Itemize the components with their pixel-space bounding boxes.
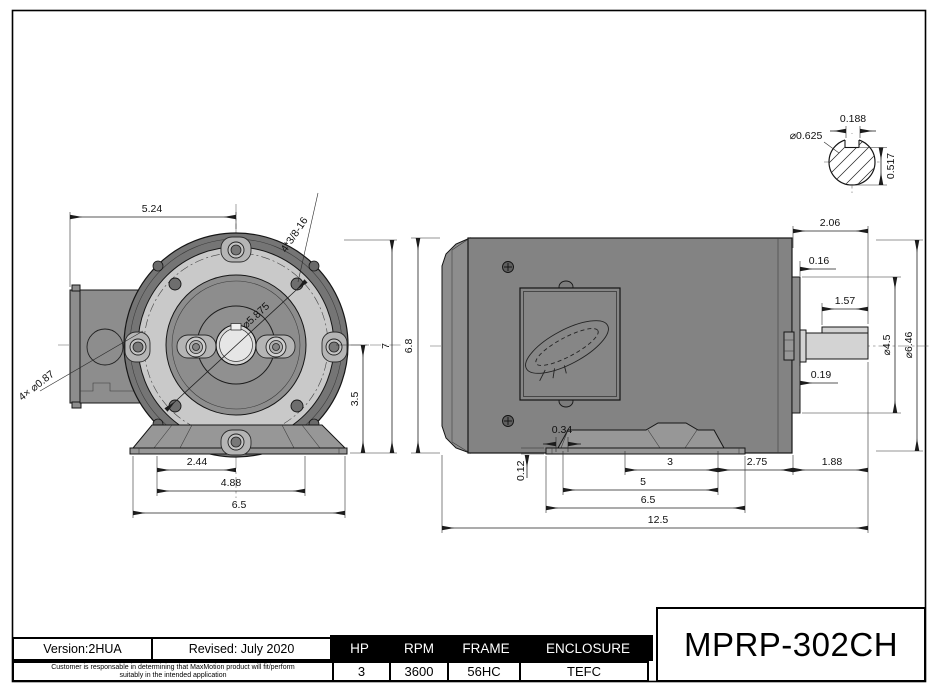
nameplate	[518, 281, 620, 407]
dim-tap-holes: 4*3/8-16	[279, 215, 311, 255]
dim-foot-bolt-length-span: 5	[640, 476, 646, 488]
dim-key-width: 0.188	[840, 113, 866, 125]
dim-face-overhang: 2.75	[747, 456, 768, 468]
dim-pilot-diameter: ⌀4.5	[881, 334, 893, 355]
flange-ear-bottom	[221, 430, 251, 455]
dim-shaft-length: 1.88	[822, 456, 843, 468]
dim-foot-bolt-span: 4.88	[221, 477, 242, 489]
dim-overall-length: 12.5	[648, 514, 669, 526]
motor-body	[468, 238, 792, 453]
drawing-sheet: 5.24 4*3/8-16 ⌀5.875 4× ⌀0.87 7 3.5 2.44…	[0, 0, 938, 692]
dim-shaft-center-height: 3.5	[349, 392, 361, 407]
dim-conduit-knockouts: 4× ⌀0.87	[16, 368, 56, 403]
disclaimer-line-1: Customer is responsable in determining t…	[51, 664, 295, 672]
version-cell: Version:2HUA	[12, 637, 153, 661]
shaft	[806, 333, 868, 359]
dim-shaft-diameter: ⌀0.625	[790, 130, 823, 142]
spec-header-hp: HP	[330, 635, 389, 661]
dim-key-flat-length: 1.57	[835, 295, 856, 307]
dim-overall-height: 7	[380, 343, 392, 349]
dim-front-width: 5.24	[142, 203, 163, 215]
dim-body-diameter: ⌀6.46	[903, 331, 915, 358]
dim-base-length: 6.5	[641, 494, 656, 506]
technical-drawing: 5.24 4*3/8-16 ⌀5.875 4× ⌀0.87 7 3.5 2.44…	[0, 0, 938, 692]
disclaimer-cell: Customer is responsable in determining t…	[12, 661, 334, 682]
spec-value-hp: 3	[332, 661, 391, 682]
spec-header-frame: FRAME	[449, 635, 523, 661]
dim-shaft-extension: 2.06	[820, 217, 841, 229]
dim-base-plate-thickness: 0.12	[515, 460, 527, 481]
dim-flat-height: 0.517	[885, 153, 897, 179]
model-number-box: MPRP-302CH	[656, 607, 926, 682]
dim-foot-bolt-half-span: 2.44	[187, 456, 208, 468]
spec-header-rpm: RPM	[389, 635, 449, 661]
disclaimer-line-2: suitably in the intended application	[119, 672, 226, 680]
title-block: Version:2HUA Revised: July 2020 HP RPM F…	[12, 635, 655, 682]
title-block-row-top: Version:2HUA Revised: July 2020 HP RPM F…	[12, 635, 653, 661]
side-view	[430, 238, 930, 454]
dim-shaft-shoulder: 0.19	[811, 369, 832, 381]
fan-cover	[442, 238, 470, 453]
shaft-cross-section-detail: 0.188 ⌀0.625 0.517	[790, 113, 897, 193]
dim-body-height: 6.8	[403, 339, 415, 354]
spec-value-enclosure: TEFC	[519, 661, 649, 682]
dim-foot-offset: 0.34	[552, 424, 573, 436]
shaft-assembly	[784, 277, 868, 413]
dim-base-width: 6.5	[232, 499, 247, 511]
spec-value-frame: 56HC	[447, 661, 521, 682]
spec-header-enclosure: ENCLOSURE	[523, 635, 653, 661]
spec-value-rpm: 3600	[389, 661, 449, 682]
dim-foot-bolt-span: 3	[667, 456, 673, 468]
dim-face-plate-thickness: 0.16	[809, 255, 830, 267]
revised-cell: Revised: July 2020	[151, 637, 332, 661]
title-block-row-bottom: Customer is responsable in determining t…	[12, 661, 649, 682]
shaft-key-flat	[822, 327, 868, 333]
spec-header-row: HP RPM FRAME ENCLOSURE	[330, 635, 653, 661]
